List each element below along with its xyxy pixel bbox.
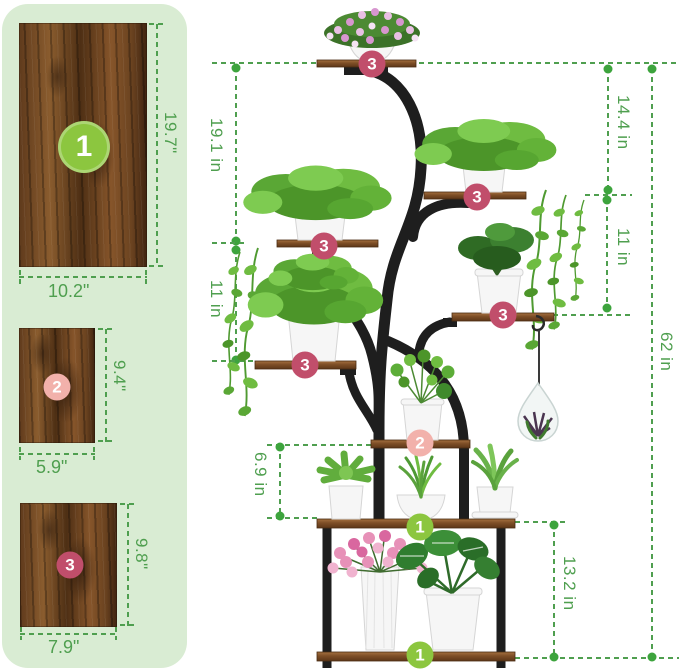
hanging-terrarium — [518, 316, 558, 441]
shelf-badge-right-upper: 3 — [464, 184, 491, 211]
succulent-plant — [320, 454, 372, 480]
plant-stand-illustration — [0, 0, 679, 672]
shelf-badge-left-upper: 3 — [311, 233, 338, 260]
right-lower-plant — [458, 223, 534, 275]
shelf-badge-left-lower: 3 — [292, 352, 319, 379]
shelf-badge-right-lower: 3 — [490, 302, 517, 329]
shelf-badge-tier2: 2 — [407, 430, 434, 457]
top-flower-plant — [324, 8, 420, 48]
shelf-badge-tier-bottom: 1 — [407, 642, 434, 669]
pilea-plant — [391, 350, 455, 404]
shelf-badge-tier-mid: 1 — [407, 514, 434, 541]
grass-plant — [400, 456, 440, 497]
product-dimension-diagram: 19.7" 10.2" 1 9.4" 5.9" 2 9.8" 7.9" 3 19… — [0, 0, 679, 672]
shelf-badge-top: 3 — [359, 51, 386, 78]
monstera-plant — [391, 528, 504, 593]
air-plant — [473, 446, 517, 488]
